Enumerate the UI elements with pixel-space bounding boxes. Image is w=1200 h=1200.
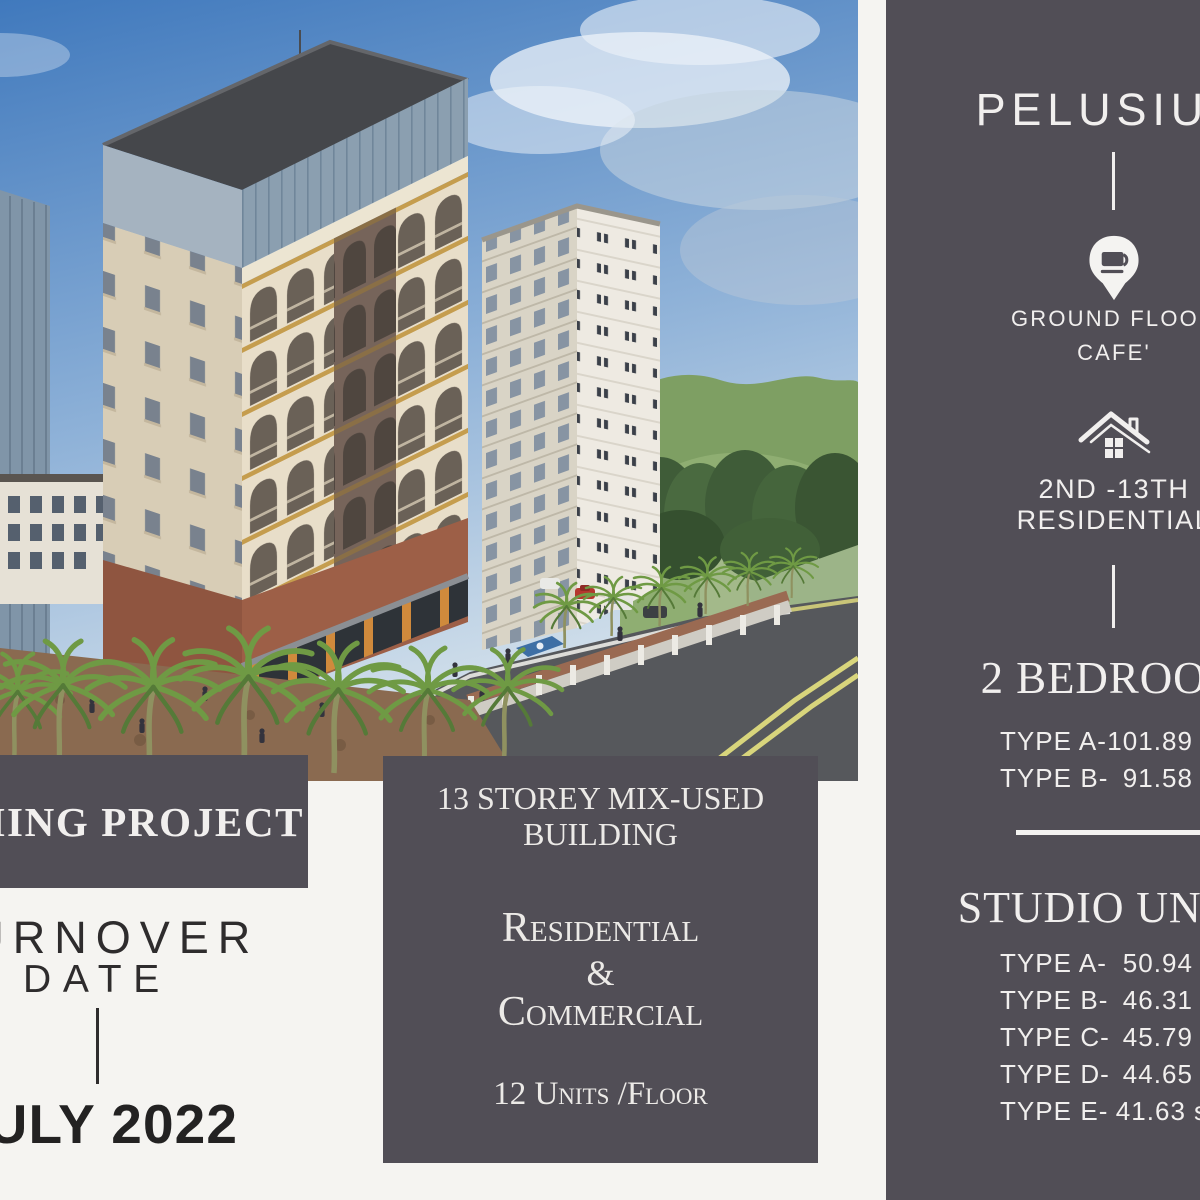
info-line1: 13 STOREY MIX-USED bbox=[383, 780, 818, 817]
second-tower bbox=[482, 206, 660, 650]
cafe-label: CAFE' bbox=[886, 340, 1200, 366]
table-row: TYPE C- 45.79 sqm bbox=[1000, 1022, 1193, 1053]
two-bedroom-heading: 2 BEDROOM bbox=[886, 652, 1200, 704]
table-row: TYPE B- 46.31 sqm bbox=[1000, 985, 1193, 1016]
unit-type-label: TYPE B- bbox=[1000, 985, 1108, 1016]
section-divider-rule bbox=[1016, 830, 1200, 835]
turnover-block: TURNOVER DATE JULY 2022 bbox=[0, 0, 344, 1200]
unit-type-label: TYPE A- bbox=[1000, 726, 1107, 757]
floors-range-label: 2ND -13TH bbox=[886, 474, 1200, 505]
unit-type-label: TYPE A- bbox=[1000, 948, 1107, 979]
unit-area-value: 45.79 bbox=[1123, 1022, 1193, 1053]
ground-floor-label: GROUND FLOOR bbox=[886, 306, 1200, 332]
unit-area-value: 50.94 bbox=[1123, 948, 1193, 979]
unit-area-unit: sqm bbox=[1194, 1096, 1200, 1127]
details-panel: PELUSIUM GROUND FLOOR CAFE' 2ND -13TH RE… bbox=[886, 0, 1200, 1200]
building-info-box: 13 STOREY MIX-USED BUILDING Residential … bbox=[383, 756, 818, 1163]
unit-area-value: 101.89 bbox=[1107, 726, 1193, 757]
unit-area-value: 44.65 bbox=[1123, 1059, 1193, 1090]
info-units-per-floor: 12 Units /Floor bbox=[383, 1076, 818, 1113]
panel-divider-2 bbox=[1112, 565, 1115, 628]
table-row: TYPE E- 41.63 sqm bbox=[1000, 1096, 1186, 1127]
panel-divider-1 bbox=[1112, 152, 1115, 210]
unit-type-label: TYPE E- bbox=[1000, 1096, 1108, 1127]
turnover-divider bbox=[96, 1008, 99, 1084]
house-roof-icon bbox=[1077, 406, 1151, 468]
info-residential: Residential bbox=[383, 904, 818, 952]
unit-area-value: 91.58 bbox=[1123, 763, 1193, 794]
project-title: PELUSIUM bbox=[886, 84, 1200, 136]
studio-units-heading: STUDIO UNITS bbox=[886, 882, 1200, 933]
info-line2: BUILDING bbox=[383, 816, 818, 853]
table-row: TYPE A- 50.94 sqm bbox=[1000, 948, 1193, 979]
info-commercial: Commercial bbox=[383, 988, 818, 1036]
unit-area-value: 46.31 bbox=[1123, 985, 1193, 1016]
table-row: TYPE B- 91.58 sqm bbox=[1000, 763, 1193, 794]
table-row: TYPE D- 44.65 sqm bbox=[1000, 1059, 1193, 1090]
floors-use-label: RESIDENTIAL bbox=[886, 505, 1200, 536]
turnover-date: JULY 2022 bbox=[0, 1092, 344, 1156]
unit-type-label: TYPE C- bbox=[1000, 1022, 1110, 1053]
unit-type-label: TYPE D- bbox=[1000, 1059, 1110, 1090]
turnover-line2: DATE bbox=[0, 958, 344, 1002]
unit-type-label: TYPE B- bbox=[1000, 763, 1108, 794]
table-row: TYPE A- 101.89 sqm bbox=[1000, 726, 1193, 757]
cafe-location-pin-icon bbox=[1083, 234, 1145, 302]
turnover-line1: TURNOVER bbox=[0, 912, 344, 964]
unit-area-value: 41.63 bbox=[1116, 1096, 1186, 1127]
